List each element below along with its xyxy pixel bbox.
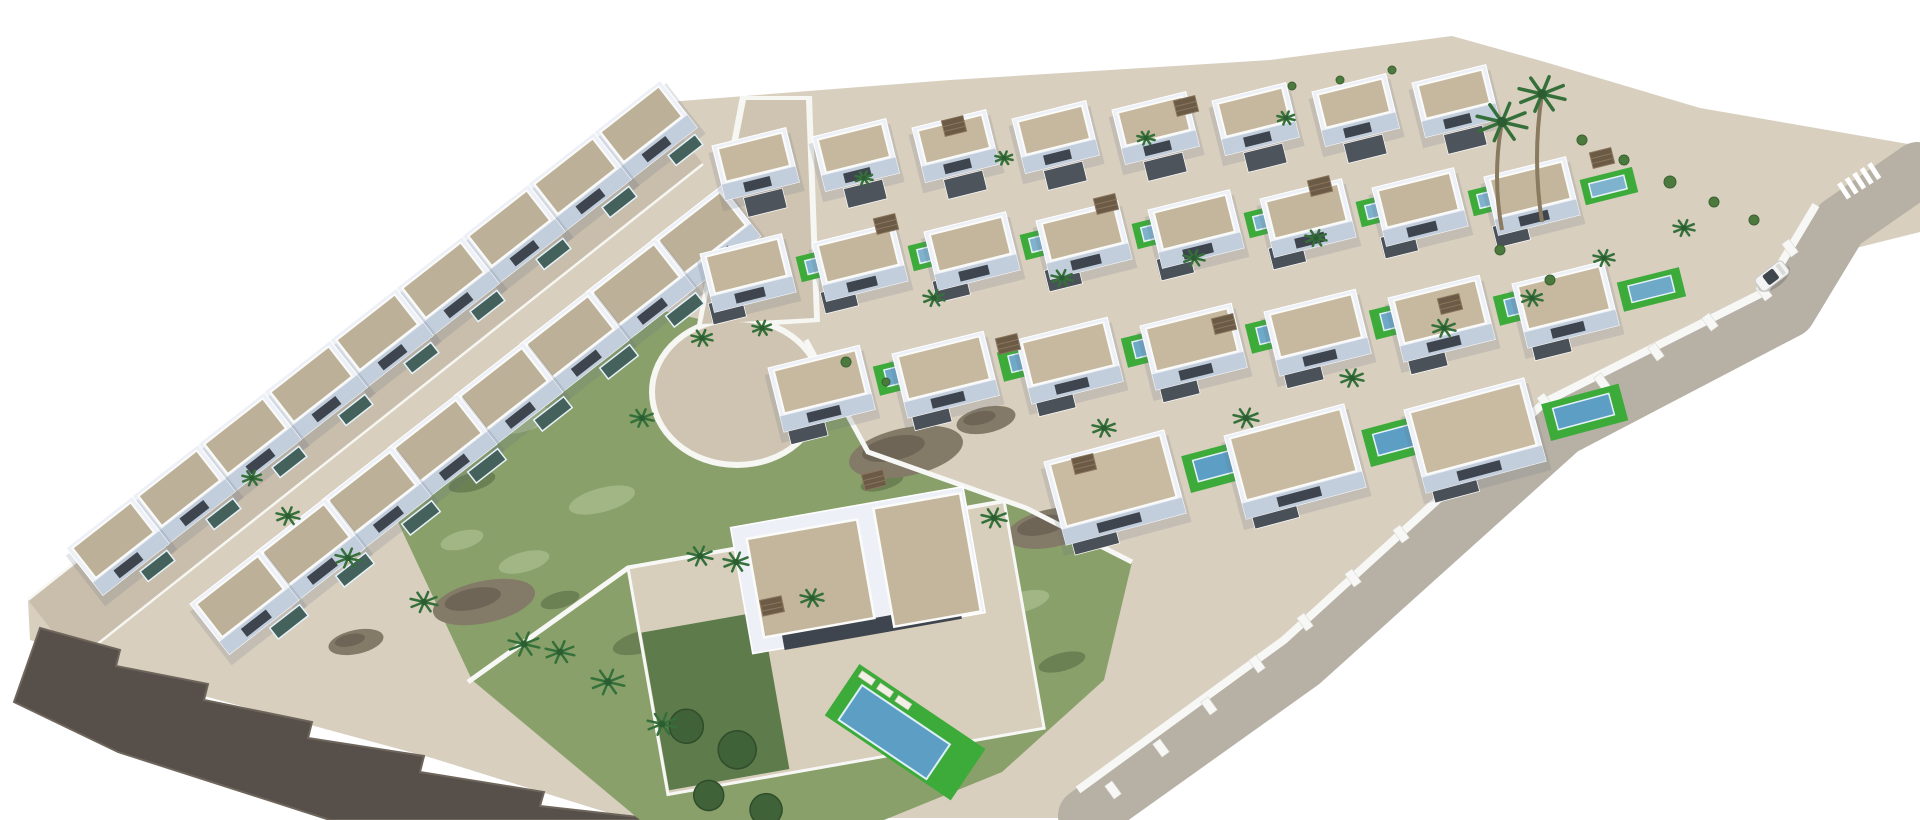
bush (1545, 275, 1555, 285)
bush (1749, 215, 1759, 225)
bush (1388, 66, 1396, 74)
bush (1495, 245, 1505, 255)
bush (1664, 176, 1676, 188)
bush (1288, 82, 1296, 90)
aerial-development-render (0, 0, 1920, 820)
bush (1577, 135, 1587, 145)
bush (1619, 155, 1629, 165)
bush (841, 357, 851, 367)
bush (1336, 76, 1344, 84)
bush (882, 378, 890, 386)
bush (1709, 197, 1719, 207)
screenshot-root (0, 0, 1920, 820)
